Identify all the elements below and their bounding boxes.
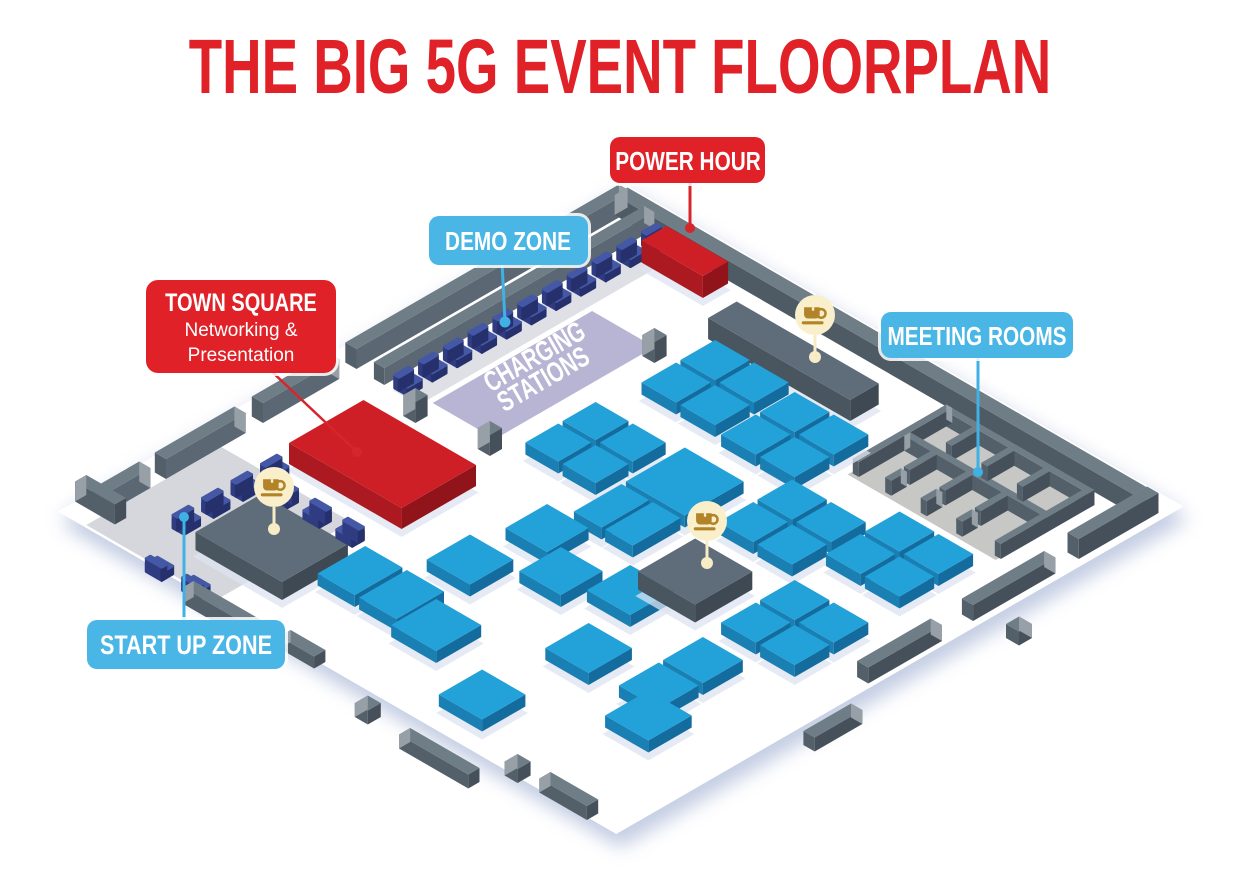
svg-text:TOWN SQUARE: TOWN SQUARE <box>165 289 317 317</box>
svg-text:Presentation: Presentation <box>188 345 295 366</box>
svg-text:Networking &: Networking & <box>185 320 298 341</box>
svg-text:POWER HOUR: POWER HOUR <box>615 147 761 176</box>
svg-text:MEETING ROOMS: MEETING ROOMS <box>887 322 1066 351</box>
svg-text:START UP ZONE: START UP ZONE <box>100 631 272 661</box>
svg-text:THE BIG 5G EVENT FLOORPLAN: THE BIG 5G EVENT FLOORPLAN <box>189 25 1052 110</box>
svg-text:DEMO ZONE: DEMO ZONE <box>445 227 571 256</box>
